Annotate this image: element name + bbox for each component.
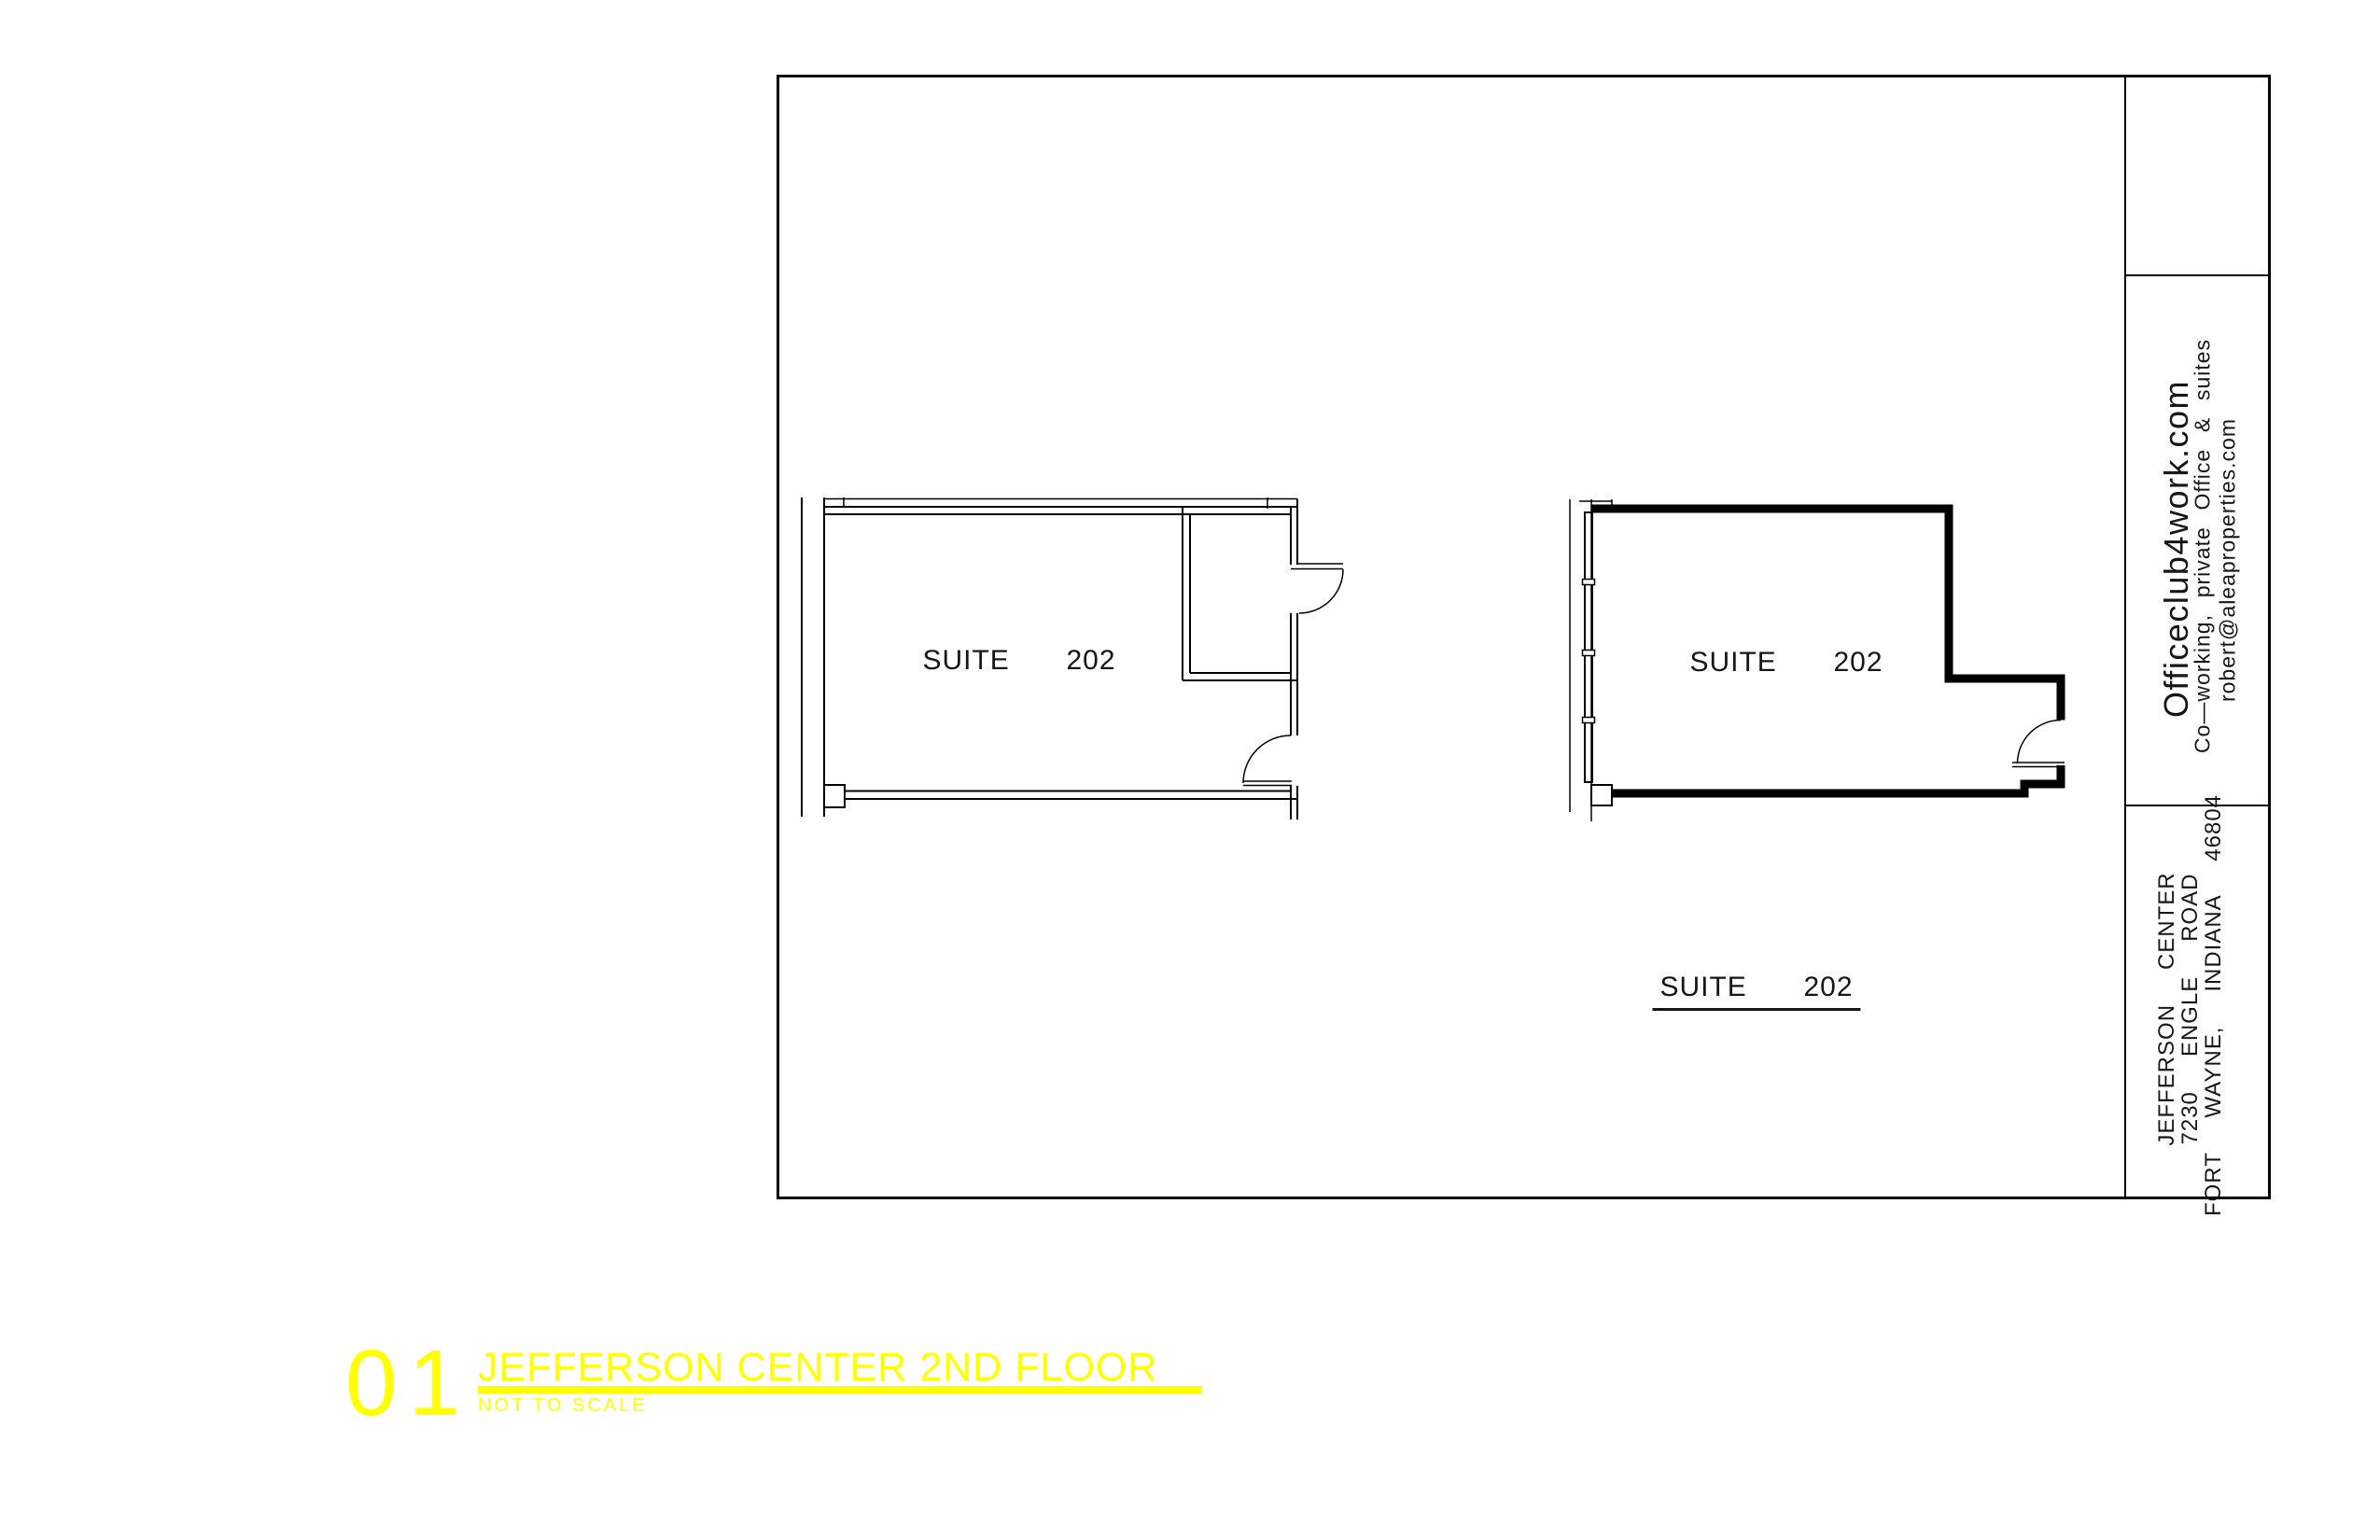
title-block-website: Officeclub4work.com (2160, 380, 2193, 718)
title-block-building-name: JEFFERSON CENTER (2156, 872, 2178, 1145)
title-block-address-city: FORT WAYNE, INDIANA 46804 (2203, 794, 2225, 1216)
title-block-address-street: 7230 ENGLE ROAD (2179, 874, 2202, 1145)
drawing-sheet: SUITE 202 SUITE 202 SUITE 202 Officeclub… (0, 0, 2380, 1540)
right-plan-room-label: SUITE 202 (1689, 649, 1883, 677)
sheet-number: 01 (345, 1337, 471, 1430)
left-plan-room-label: SUITE 202 (922, 647, 1115, 675)
suite-caption: SUITE 202 (1652, 973, 1860, 1011)
sheet-title-underline (478, 1386, 1202, 1393)
sheet-scale-note: NOT TO SCALE (478, 1396, 648, 1415)
floor-plan-drawing (0, 0, 2380, 1540)
sheet-title: JEFFERSON CENTER 2ND FLOOR (478, 1348, 1157, 1388)
title-block-tagline: Co—working, private Office & suites (2192, 339, 2214, 753)
title-block-email: robert@aleaproperties.com (2218, 418, 2239, 702)
